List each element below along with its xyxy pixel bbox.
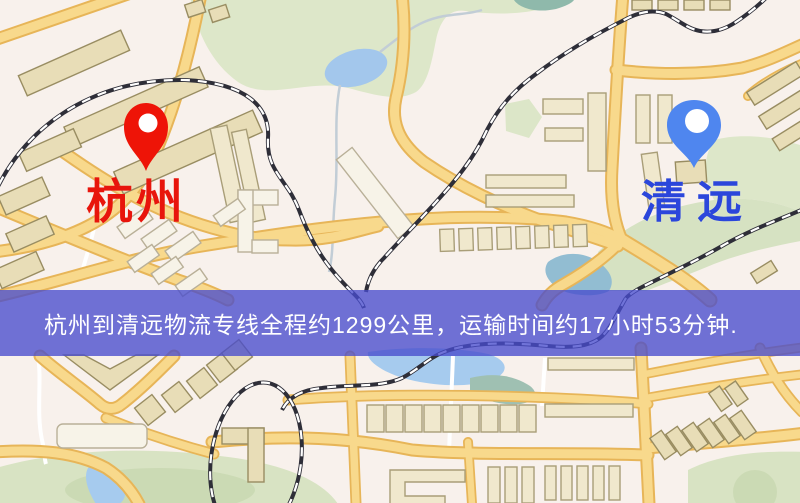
map-view[interactable]: 杭州 清远 杭州到清远物流专线全程约1299公里，运输时间约17小时53分钟. — [0, 0, 800, 503]
route-info-banner: 杭州到清远物流专线全程约1299公里，运输时间约17小时53分钟. — [0, 290, 800, 356]
map-background — [0, 0, 800, 503]
route-info-text: 杭州到清远物流专线全程约1299公里，运输时间约17小时53分钟. — [0, 306, 738, 340]
